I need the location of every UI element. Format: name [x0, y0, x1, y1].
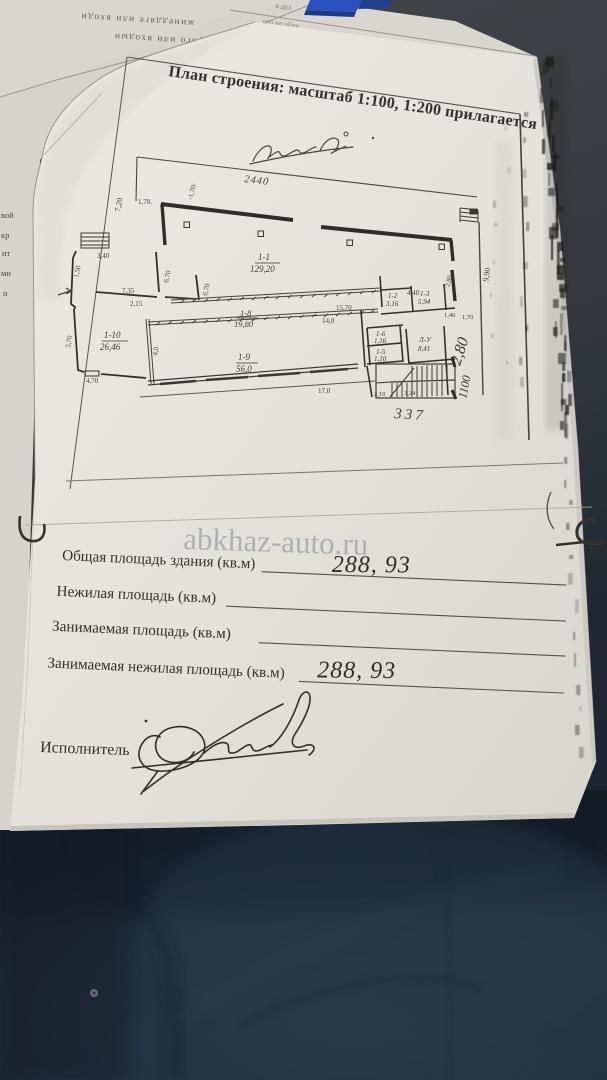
svg-text:7,35: 7,35 [122, 287, 135, 295]
svg-text:14,0: 14,0 [322, 317, 335, 325]
svg-text:1-10: 1-10 [104, 330, 121, 340]
svg-text:1-8: 1-8 [240, 308, 252, 318]
svg-text:15,70: 15,70 [336, 304, 352, 312]
svg-text:17,0: 17,0 [318, 387, 331, 395]
svg-text:1,70.: 1,70. [138, 198, 152, 206]
svg-text:337: 337 [393, 406, 427, 424]
svg-text:4,70: 4,70 [86, 377, 99, 385]
svg-text:ит: ит [2, 248, 11, 258]
svg-text:19,80: 19,80 [234, 319, 254, 329]
svg-text:1,10: 1,10 [374, 355, 387, 363]
svg-text:вой: вой [1, 210, 14, 220]
svg-text:Исполнитель: Исполнитель [40, 739, 130, 759]
svg-text:1-2: 1-2 [388, 292, 398, 300]
svg-text:ми: ми [1, 268, 11, 278]
svg-text:8,41: 8,41 [418, 345, 430, 353]
svg-text:26,46: 26,46 [100, 342, 121, 352]
svg-text:3,24: 3,24 [404, 390, 416, 397]
svg-text:1,16: 1,16 [374, 337, 387, 345]
svg-text:1,70: 1,70 [462, 314, 473, 321]
svg-text:н: н [3, 288, 8, 298]
svg-text:3,16: 3,16 [385, 300, 399, 308]
svg-text:1-3: 1-3 [420, 290, 430, 298]
svg-text:Л-У: Л-У [418, 336, 432, 344]
svg-text:1-1: 1-1 [258, 252, 270, 262]
svg-text:2,15: 2,15 [130, 300, 143, 308]
svg-text:кр: кр [1, 230, 9, 240]
svg-text:3,40: 3,40 [97, 252, 110, 260]
svg-text:56,0: 56,0 [236, 364, 252, 374]
svg-text:4,40: 4,40 [407, 289, 420, 297]
svg-text:1-9: 1-9 [238, 352, 250, 362]
svg-text:129,20: 129,20 [250, 264, 275, 274]
svg-text:288, 93: 288, 93 [332, 552, 411, 579]
svg-text:1,40: 1,40 [444, 312, 455, 319]
svg-text:288, 93: 288, 93 [317, 657, 396, 684]
svg-text:5,94: 5,94 [418, 298, 431, 306]
svg-text:2,10: 2,10 [374, 391, 385, 398]
